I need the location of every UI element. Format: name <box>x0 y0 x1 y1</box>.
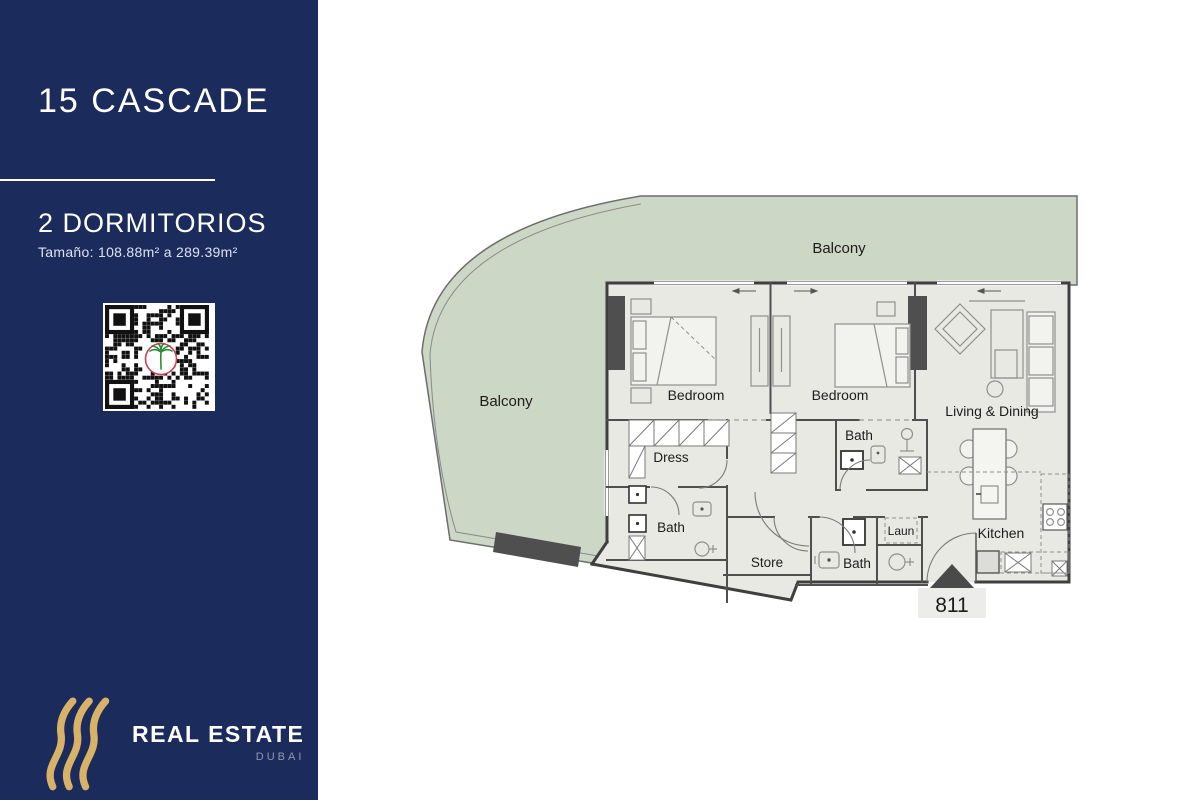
label-laundry: Laun <box>888 524 915 538</box>
qr-palm-logo-icon <box>142 340 176 374</box>
label-bath-3: Bath <box>845 428 873 443</box>
label-bath-1: Bath <box>657 520 685 535</box>
shear-wall-mid <box>908 296 927 370</box>
page: 15 CASCADE 2 DORMITORIOS Tamaño: 108.88m… <box>0 0 1200 800</box>
label-balcony-left: Balcony <box>479 393 533 410</box>
brand-name: REAL ESTATE <box>132 721 304 748</box>
brand-logo: REAL ESTATE DUBAI <box>40 693 304 793</box>
label-dress: Dress <box>653 450 689 465</box>
label-bath-2: Bath <box>843 556 871 571</box>
qr-code <box>103 303 215 411</box>
title-divider <box>0 179 215 181</box>
sidebar: 15 CASCADE 2 DORMITORIOS Tamaño: 108.88m… <box>0 0 318 800</box>
floorplan-drawing: 811 Balcony Balcony Bedroom Bedroom Livi… <box>319 0 1200 800</box>
label-living-dining: Living & Dining <box>945 403 1038 419</box>
brand-location: DUBAI <box>132 751 304 763</box>
floorplan-area: 811 Balcony Balcony Bedroom Bedroom Livi… <box>319 0 1200 800</box>
label-bedroom-1: Bedroom <box>668 387 725 403</box>
bedrooms-subtitle: 2 DORMITORIOS <box>38 208 267 239</box>
shear-wall-left <box>608 296 625 370</box>
unit-number-label: 811 <box>935 594 968 617</box>
label-kitchen: Kitchen <box>978 525 1025 541</box>
size-text: Tamaño: 108.88m² a 289.39m² <box>38 244 238 260</box>
label-store: Store <box>751 555 783 570</box>
brand-waves-icon <box>40 693 122 793</box>
page-title: 15 CASCADE <box>38 82 270 121</box>
label-bedroom-2: Bedroom <box>812 387 869 403</box>
label-balcony-top: Balcony <box>812 240 866 257</box>
